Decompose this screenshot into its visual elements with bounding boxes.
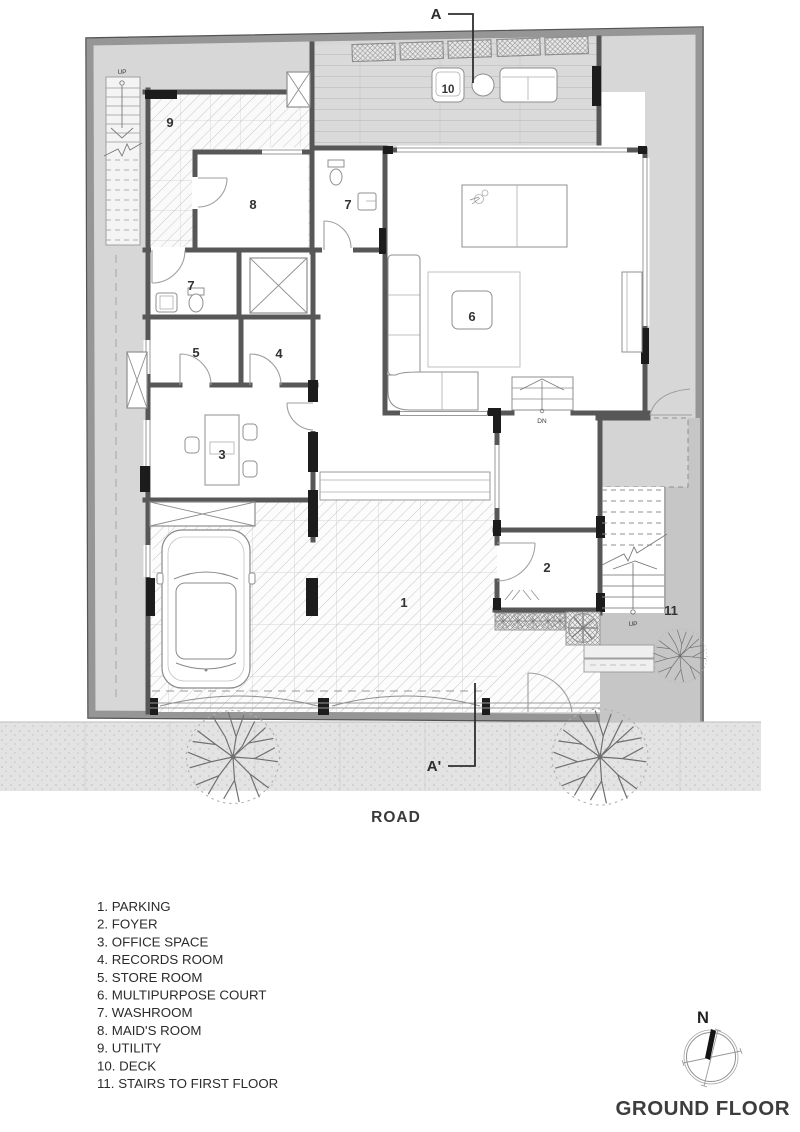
legend-item-6: 6. MULTIPURPOSE COURT	[97, 988, 266, 1003]
plan-label-parking: 1	[400, 595, 407, 610]
court-console	[622, 272, 642, 352]
car	[157, 530, 255, 688]
ground-floor-drawing: UP UP	[0, 0, 800, 1132]
legend-item-10: 10. DECK	[97, 1058, 156, 1073]
plan-label-washroom-2: 7	[344, 197, 351, 212]
steps-dn-label: DN	[537, 418, 547, 425]
road-label: ROAD	[371, 809, 421, 826]
plan-label-store: 5	[192, 345, 199, 360]
court-table	[462, 185, 567, 247]
plan-label-maid: 8	[249, 197, 256, 212]
deck-round-table	[472, 74, 494, 96]
section-a-prime-label: A'	[427, 758, 441, 775]
legend-item-5: 5. STORE ROOM	[97, 970, 202, 985]
plan-label-court: 6	[468, 309, 475, 324]
legend-item-9: 9. UTILITY	[97, 1041, 161, 1056]
left-stair: UP	[104, 69, 142, 245]
road	[0, 722, 761, 791]
plan-label-deck: 10	[442, 84, 455, 96]
legend-item-7: 7. WASHROOM	[97, 1005, 193, 1020]
north-label: N	[697, 1009, 709, 1027]
legend-item-8: 8. MAID'S ROOM	[97, 1023, 202, 1038]
legend-item-2: 2. FOYER	[97, 917, 158, 932]
north-compass: N	[682, 1009, 742, 1087]
legend: 1. PARKING 2. FOYER 3. OFFICE SPACE 4. R…	[97, 899, 278, 1091]
legend-item-4: 4. RECORDS ROOM	[97, 952, 223, 967]
legend-item-11: 11. STAIRS TO FIRST FLOOR	[97, 1076, 278, 1091]
plan-label-office: 3	[218, 447, 225, 462]
plan-label-foyer: 2	[543, 560, 550, 575]
plan-label-stairs: 11	[664, 603, 678, 618]
legend-item-1: 1. PARKING	[97, 899, 171, 914]
stair-zone	[600, 418, 700, 722]
legend-item-3: 3. OFFICE SPACE	[97, 934, 208, 949]
plan-label-utility: 9	[166, 115, 173, 130]
plan-label-washroom-1: 7	[187, 278, 194, 293]
left-stair-up-label: UP	[117, 69, 126, 76]
deck-sofa	[500, 68, 557, 102]
plan-label-records: 4	[275, 346, 283, 361]
stair11-up-label: UP	[628, 621, 637, 628]
section-a-label: A	[431, 6, 442, 23]
page-title: GROUND FLOOR	[615, 1097, 790, 1120]
deck	[312, 36, 599, 148]
